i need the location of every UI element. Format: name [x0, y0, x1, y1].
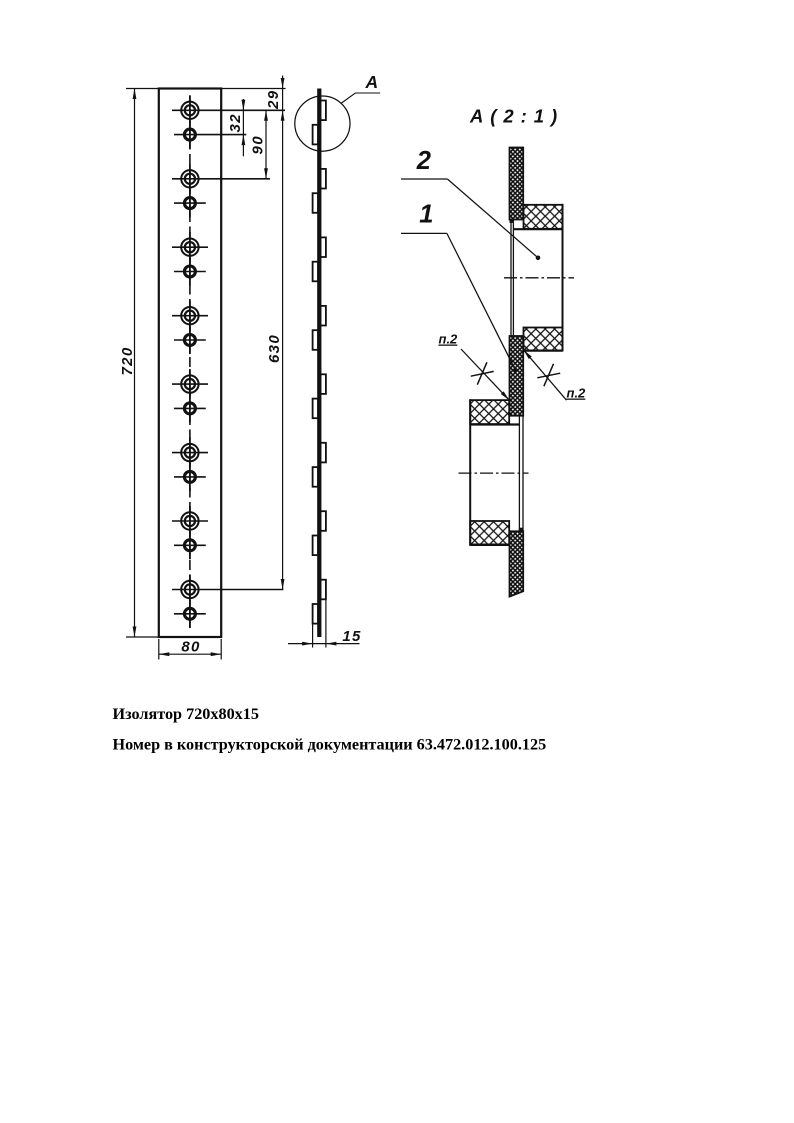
svg-text:720: 720: [119, 347, 136, 376]
svg-text:80: 80: [181, 639, 200, 656]
svg-text:90: 90: [249, 135, 266, 154]
svg-text:29: 29: [265, 90, 282, 110]
svg-text:А ( 2 : 1 ): А ( 2 : 1 ): [469, 105, 558, 126]
svg-text:2: 2: [416, 147, 432, 175]
svg-text:А: А: [365, 72, 380, 92]
svg-text:п.2: п.2: [439, 332, 459, 347]
svg-text:1: 1: [419, 201, 434, 229]
svg-text:Номер в конструкторской докуме: Номер в конструкторской документации 63.…: [113, 735, 547, 753]
svg-text:630: 630: [266, 334, 283, 363]
svg-text:32: 32: [227, 113, 244, 132]
svg-text:15: 15: [342, 628, 361, 645]
svg-text:Изолятор 720х80х15: Изолятор 720х80х15: [113, 705, 259, 723]
svg-text:п.2: п.2: [567, 386, 587, 401]
